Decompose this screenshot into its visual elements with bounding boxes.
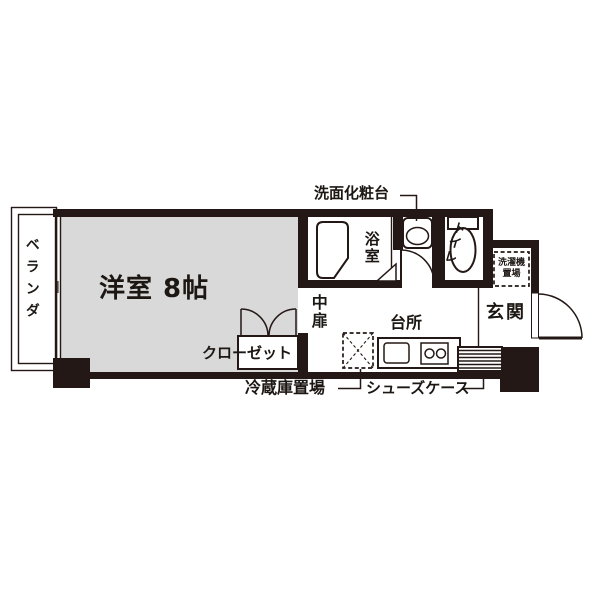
main-room-label: 洋室 8帖 xyxy=(99,276,209,303)
entrance-doorway xyxy=(532,293,539,338)
floor-plan: ベランダ 洋室 8帖 クローゼット 浴室 トイレ 洗濯機 置場 中扉 台所 玄関… xyxy=(0,0,600,600)
washing-machine-label: 洗濯機 置場 xyxy=(494,252,529,286)
refrigerator-label: 冷蔵庫置場 xyxy=(245,380,325,397)
closet-label: クローゼット xyxy=(202,346,292,362)
vanity-label: 洗面化粧台 xyxy=(314,186,389,202)
washbasin-icon xyxy=(403,218,432,248)
floor-plan-drawing xyxy=(0,0,600,600)
balcony-label: ベランダ xyxy=(24,237,39,325)
kitchen-counter xyxy=(378,338,460,368)
middle-door-label: 中扉 xyxy=(309,294,326,330)
bathroom-door-mark xyxy=(377,264,396,281)
bathtub-icon xyxy=(317,222,348,278)
washing-machine-label-line1: 洗濯機 xyxy=(498,258,525,269)
washing-machine-label-line2: 置場 xyxy=(502,269,520,280)
stove-icon xyxy=(421,343,448,364)
entrance-label: 玄関 xyxy=(486,304,526,323)
shoe-case-label: シューズケース xyxy=(366,381,470,397)
kitchen-label: 台所 xyxy=(390,315,422,332)
bathroom-label: 浴室 xyxy=(363,231,379,265)
entrance-door xyxy=(539,294,582,338)
shoe-case-box xyxy=(458,347,502,371)
sink-icon xyxy=(384,343,409,363)
refrigerator-box xyxy=(343,333,373,368)
washroom-door xyxy=(401,250,434,283)
